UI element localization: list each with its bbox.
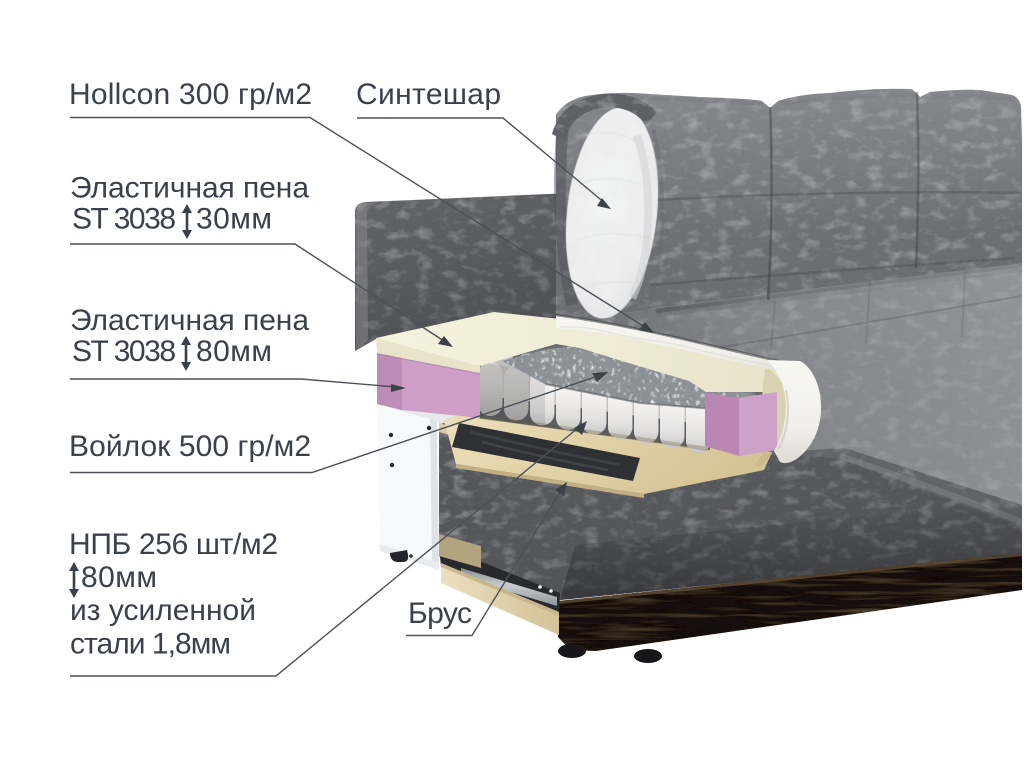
svg-text:НПБ 256 шт/м2: НПБ 256 шт/м2 <box>69 528 278 561</box>
svg-text:из усиленной: из усиленной <box>70 594 256 627</box>
svg-text:Синтешар: Синтешар <box>356 78 501 111</box>
svg-text:Войлок 500 гр/м2: Войлок 500 гр/м2 <box>69 430 311 463</box>
svg-text:ST 3038: ST 3038 <box>72 203 176 236</box>
svg-text:ST 3038: ST 3038 <box>72 335 176 368</box>
svg-text:80мм: 80мм <box>196 335 272 368</box>
svg-text:Эластичная пена: Эластичная пена <box>70 304 309 337</box>
svg-text:Брус: Брус <box>408 597 472 630</box>
svg-text:80мм: 80мм <box>81 561 157 594</box>
svg-text:Hollcon 300 гр/м2: Hollcon 300 гр/м2 <box>69 78 312 111</box>
svg-text:Эластичная пена: Эластичная пена <box>70 172 309 205</box>
svg-text:30мм: 30мм <box>196 203 272 236</box>
svg-text:стали 1,8мм: стали 1,8мм <box>70 628 231 661</box>
